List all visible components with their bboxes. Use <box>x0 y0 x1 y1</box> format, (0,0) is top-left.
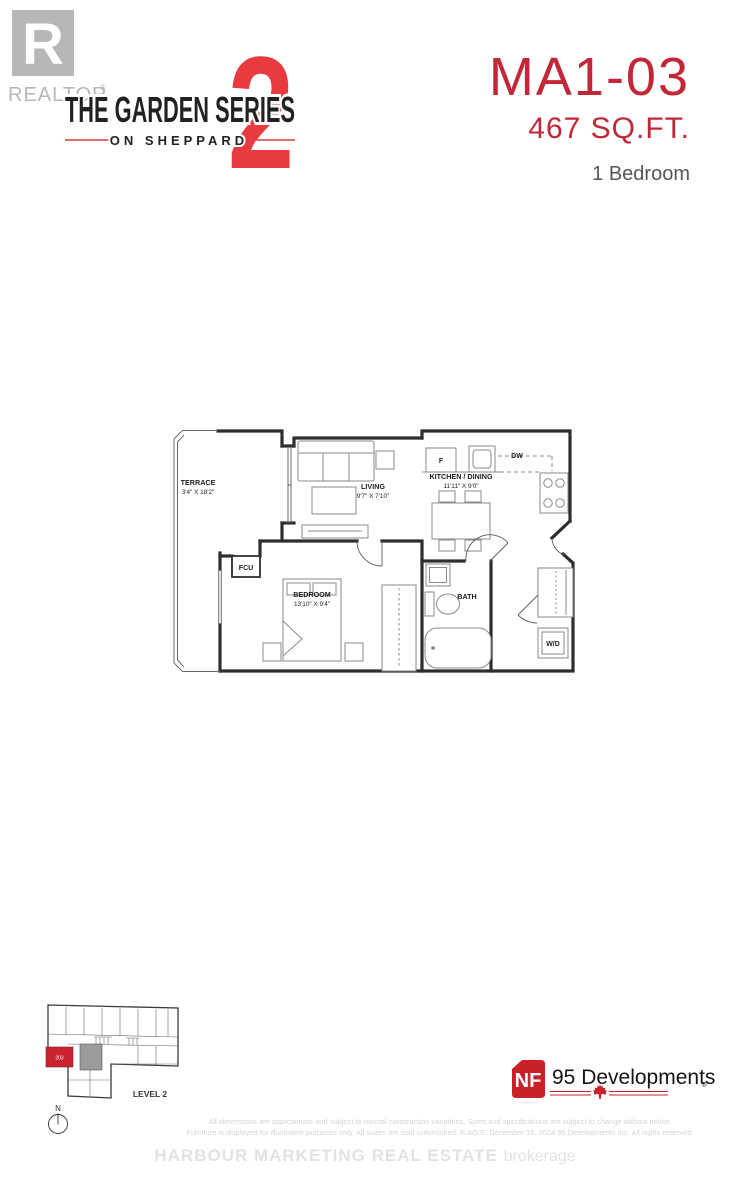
keyplan-core <box>80 1044 102 1070</box>
nightstand <box>345 643 363 661</box>
dining-chair <box>439 491 455 502</box>
dining-table <box>432 503 490 539</box>
north-label: N <box>55 1104 61 1113</box>
nf-initials: NF <box>515 1070 542 1092</box>
unit-type: 1 Bedroom <box>489 164 690 184</box>
dw-dashed-line <box>498 456 552 471</box>
coat-closet <box>538 568 573 617</box>
disclaimer-line-1: All dimensions are approximate and subje… <box>170 1116 710 1127</box>
kitchen-sink-basin <box>473 450 491 468</box>
brokerage-line: HARBOUR MARKETING REAL ESTATE brokerage <box>0 1146 730 1166</box>
bedroom-door <box>357 541 382 566</box>
bedroom-furniture <box>263 579 416 671</box>
laundry-label: W/D <box>546 641 560 648</box>
toilet-bowl <box>437 594 460 614</box>
keyplan-unit-number: 203 <box>55 1056 64 1062</box>
bedroom-label: BEDROOM <box>293 590 331 599</box>
dining-chair <box>465 491 481 502</box>
living-label: LIVING <box>361 482 385 491</box>
hall-closet-door <box>518 595 538 623</box>
fcu-label: FCU <box>239 565 253 572</box>
toilet-tank <box>425 592 434 616</box>
developer-logo: NF 95 Developments ® <box>492 1053 722 1111</box>
terrace-label: TERRACE <box>181 478 216 487</box>
unit-model: MA1-03 <box>489 50 690 104</box>
keyplan-level-label: LEVEL 2 <box>133 1089 168 1099</box>
dining-furniture <box>432 491 490 551</box>
disclaimer-text: All dimensions are approximate and subje… <box>170 1116 710 1139</box>
disclaimer-line-2: Furniture is displayed for illustrative … <box>170 1127 710 1138</box>
garden-series-logo: 2 THE GARDEN SERIES ON SHEPPARD <box>55 38 315 178</box>
tub-drain <box>432 647 435 650</box>
north-arrow-icon: N <box>49 1104 68 1134</box>
developer-registered-icon: ® <box>702 1081 707 1089</box>
floorplan-brochure-page: R REALTOR ® 2 THE GARDEN SERIES ON SHEPP… <box>0 0 730 1200</box>
living-dims: 9'7" X 7'10" <box>357 493 390 500</box>
dishwasher-label: DW <box>511 453 523 460</box>
developer-rules <box>550 1092 668 1096</box>
sofa <box>298 441 374 481</box>
developer-name: 95 Developments <box>552 1066 715 1089</box>
unit-info: MA1-03 467 SQ.FT. 1 Bedroom <box>489 50 690 184</box>
bath-label: BATH <box>457 592 476 601</box>
brand-title: THE GARDEN SERIES <box>65 89 295 130</box>
fridge-label: F <box>439 458 444 465</box>
unit-area: 467 SQ.FT. <box>489 114 690 144</box>
bath-sink-basin <box>430 568 447 583</box>
floor-plan: TERRACE 3'4" X 18'2" LIVING 9'7" X 7'10"… <box>160 415 610 700</box>
plan-labels: TERRACE 3'4" X 18'2" LIVING 9'7" X 7'10"… <box>181 453 560 648</box>
nightstand <box>263 643 281 661</box>
kitchen-dims: 11'11" X 9'0" <box>443 483 478 490</box>
brokerage-name: HARBOUR MARKETING REAL ESTATE <box>154 1146 498 1165</box>
stove <box>540 473 568 513</box>
side-table <box>376 451 394 469</box>
brand-subtitle: ON SHEPPARD <box>110 133 248 148</box>
terrace-rails-and-windows <box>174 430 291 672</box>
brokerage-word: brokerage <box>504 1148 576 1165</box>
bath-fixtures <box>425 564 491 668</box>
coffee-table <box>312 487 356 514</box>
terrace-dims: 3'4" X 18'2" <box>182 489 215 496</box>
dining-chair <box>439 540 455 551</box>
bedroom-dims: 13'10" X 9'4" <box>294 601 330 608</box>
kitchen-label: KITCHEN / DINING <box>429 472 493 481</box>
